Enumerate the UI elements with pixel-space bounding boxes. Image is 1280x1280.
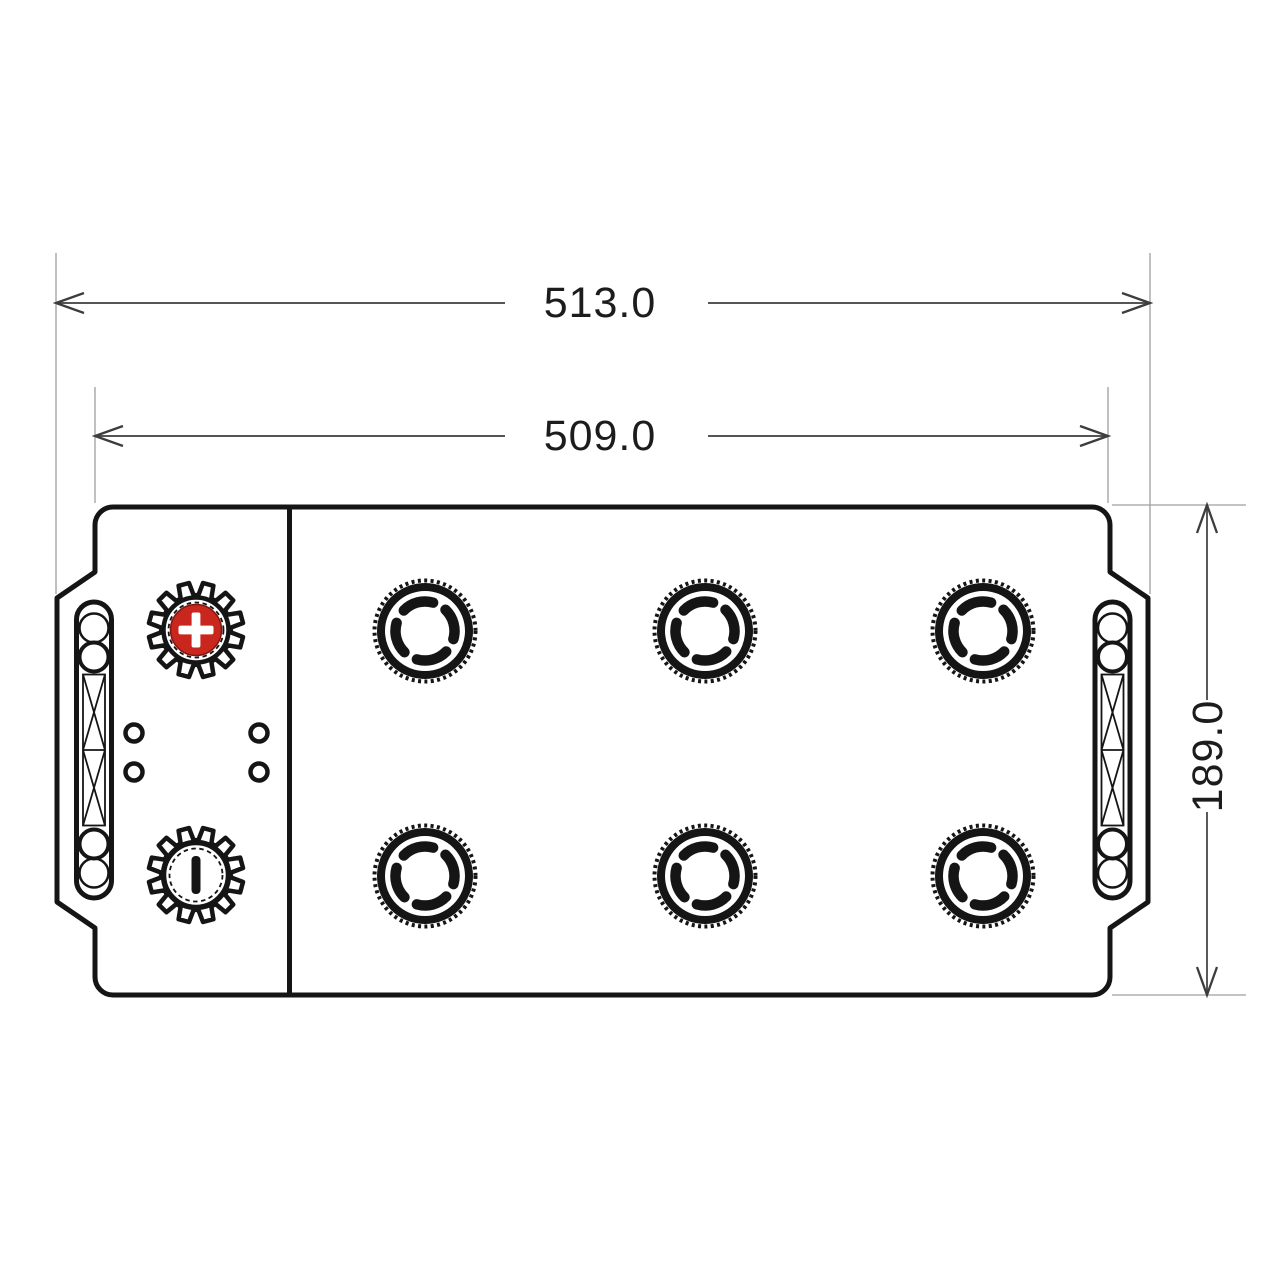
vent-cap	[933, 581, 1034, 682]
vent-cap	[933, 826, 1034, 927]
minus-icon	[192, 856, 201, 894]
dimension-label-width: 189.0	[1184, 700, 1232, 813]
battery-technical-drawing: 513.0 509.0 189.0	[0, 0, 1280, 1280]
positive-terminal	[149, 583, 243, 677]
vent-cap	[375, 581, 476, 682]
right-handle	[1095, 602, 1130, 898]
vent-cap	[655, 581, 756, 682]
dimension-label-overall-length: 513.0	[544, 279, 657, 327]
negative-terminal	[149, 828, 243, 922]
vent-cap	[655, 826, 756, 927]
dimension-label-body-length: 509.0	[544, 412, 657, 460]
left-handle	[77, 602, 112, 898]
vent-cap	[375, 826, 476, 927]
drawing-svg: 513.0 509.0 189.0	[0, 0, 1280, 1280]
